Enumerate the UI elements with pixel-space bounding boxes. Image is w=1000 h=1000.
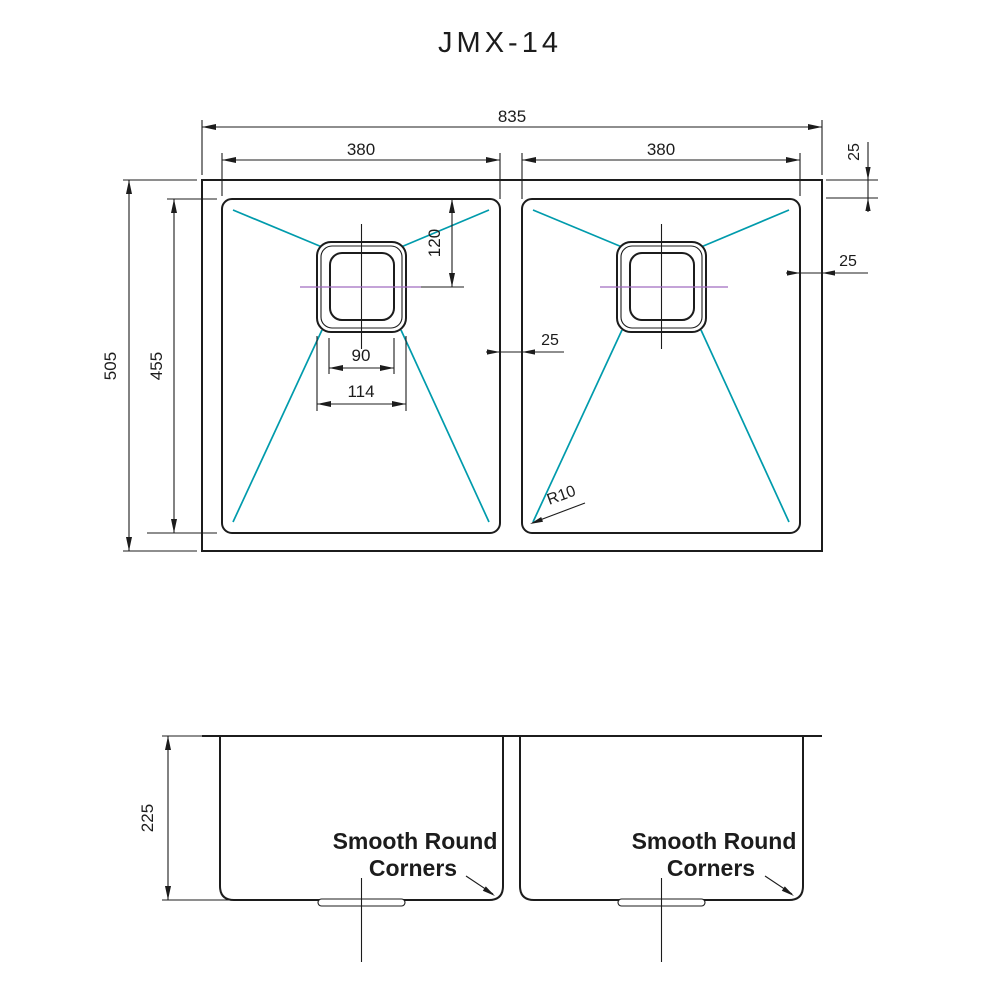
- dim-text-25-right: 25: [839, 253, 857, 270]
- dim-front-depth: 225: [138, 736, 252, 900]
- front-view: 225 Smooth Round Corners Smooth Round Co…: [138, 736, 822, 962]
- dim-overall-width: 835: [202, 107, 822, 175]
- dim-text-25-divider: 25: [541, 332, 559, 349]
- right-note-line1: Smooth Round: [632, 828, 797, 854]
- left-corner-note: Smooth Round Corners: [333, 828, 498, 896]
- dim-text-380-right: 380: [647, 140, 675, 159]
- right-note-line2: Corners: [667, 855, 755, 881]
- dim-text-114: 114: [347, 382, 374, 401]
- drawing-title: JMX-14: [438, 27, 562, 59]
- dim-top-rim: 25: [826, 142, 878, 212]
- front-right-bowl: [520, 736, 803, 900]
- drawing-sheet: JMX-14: [0, 0, 1000, 1000]
- dim-text-90: 90: [352, 346, 371, 365]
- top-view: 835 380 380 505 455: [101, 107, 878, 551]
- dim-text-380-left: 380: [347, 140, 375, 159]
- technical-drawing: JMX-14: [0, 0, 1000, 1000]
- dim-text-120: 120: [425, 229, 444, 257]
- dim-text-505: 505: [101, 352, 120, 380]
- front-left-bowl: [220, 736, 503, 900]
- right-corner-note: Smooth Round Corners: [632, 828, 797, 896]
- left-note-line2: Corners: [369, 855, 457, 881]
- dim-text-225: 225: [138, 804, 157, 832]
- dim-text-25-top: 25: [846, 143, 863, 161]
- left-note-line1: Smooth Round: [333, 828, 498, 854]
- dim-text-835: 835: [498, 107, 526, 126]
- dim-text-455: 455: [147, 352, 166, 380]
